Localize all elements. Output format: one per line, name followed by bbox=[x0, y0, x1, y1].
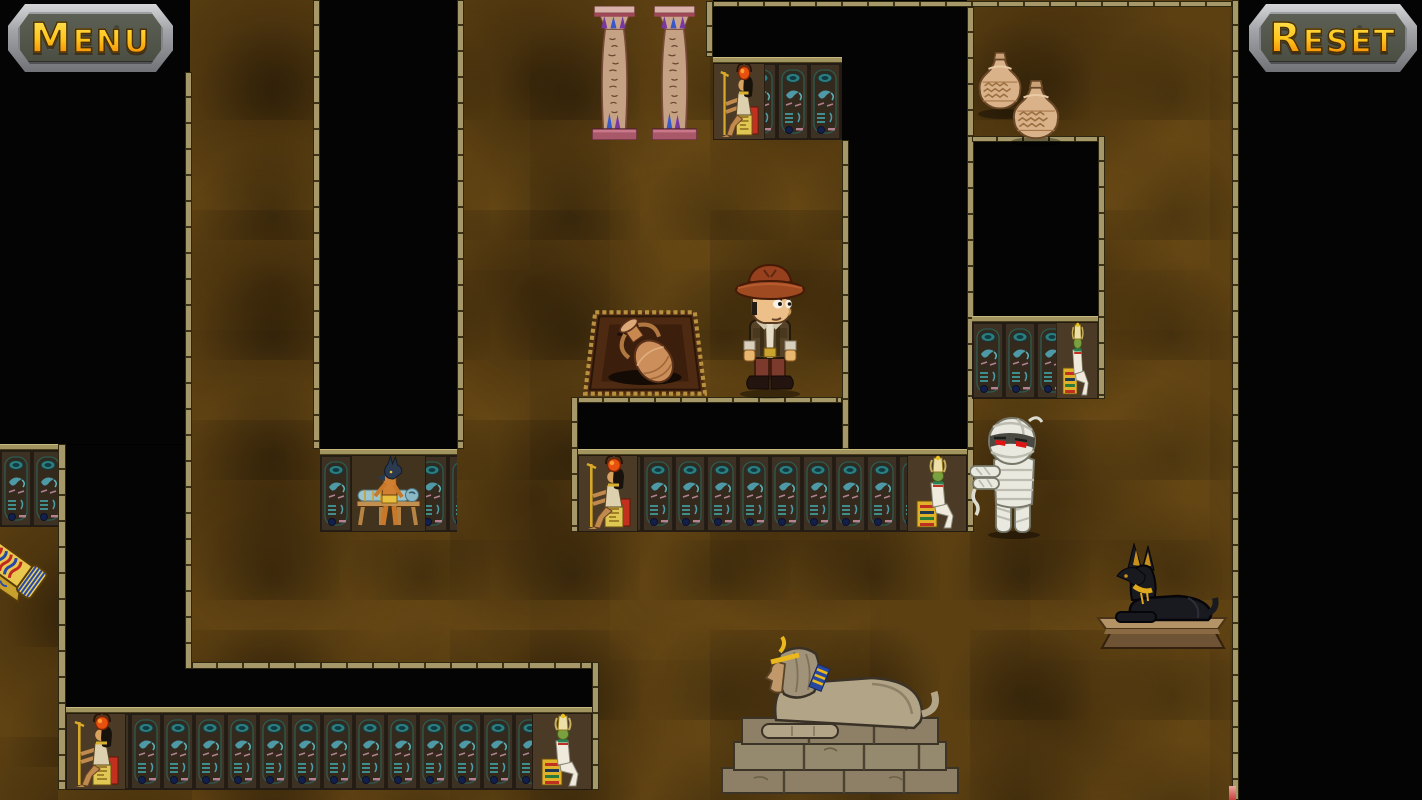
pillar-icon bbox=[652, 6, 697, 140]
clay-vases-icon bbox=[972, 50, 1064, 146]
sarcophagus-lid-icon bbox=[0, 520, 70, 604]
wall-border bbox=[706, 1, 713, 57]
wall-block-center-low bbox=[578, 403, 842, 449]
wall-border bbox=[1098, 136, 1105, 399]
treasure-amphora-rug-icon bbox=[583, 306, 707, 400]
wall-border bbox=[842, 140, 849, 449]
explorer-character[interactable] bbox=[722, 262, 818, 400]
hieroglyph-bottom-row-icon bbox=[66, 713, 592, 790]
reset-button-label: Reset bbox=[1249, 14, 1417, 66]
wall-border bbox=[457, 0, 464, 449]
wall-block-bottom bbox=[66, 669, 592, 707]
hieroglyph-left-row-icon bbox=[0, 450, 58, 527]
wall-block-top-center bbox=[713, 0, 967, 57]
wall-face-left-edge-row bbox=[0, 444, 58, 527]
wall-block-tower bbox=[320, 0, 457, 449]
wall-border bbox=[592, 662, 599, 790]
game-board[interactable]: Menu Reset bbox=[0, 0, 1422, 800]
void-right bbox=[1239, 0, 1422, 800]
wall-face-top-row bbox=[713, 57, 842, 140]
pillar-icon bbox=[592, 6, 637, 140]
anubis-statue-icon bbox=[1092, 534, 1234, 652]
map-edge-border bbox=[1232, 0, 1239, 800]
wall-border bbox=[192, 662, 592, 669]
reset-button[interactable]: Reset bbox=[1249, 4, 1417, 72]
hieroglyph-center-row-icon bbox=[578, 455, 967, 532]
wall-border bbox=[571, 397, 578, 532]
wall-border bbox=[58, 444, 66, 790]
sphinx-statue-icon bbox=[714, 628, 966, 796]
menu-button-label: Menu bbox=[8, 14, 173, 66]
wall-face-embalming-row bbox=[320, 449, 457, 532]
menu-button[interactable]: Menu bbox=[8, 4, 173, 72]
wall-face-right-row bbox=[972, 316, 1098, 399]
mummy-enemy bbox=[970, 414, 1058, 540]
wall-border bbox=[185, 72, 192, 669]
hieroglyph-embalming-scene-icon bbox=[320, 455, 457, 532]
clipped-sprite-fragment bbox=[1229, 786, 1236, 800]
hieroglyph-goddess-row-icon bbox=[713, 63, 842, 140]
wall-border bbox=[313, 0, 320, 449]
wall-block-center-arm bbox=[842, 57, 967, 449]
wall-block-left-lower bbox=[66, 445, 190, 671]
wall-face-bottom-row bbox=[66, 707, 592, 790]
wall-block-right-mid bbox=[972, 142, 1098, 316]
wall-face-center-row bbox=[578, 449, 967, 532]
hieroglyph-osiris-row-icon bbox=[972, 322, 1098, 399]
